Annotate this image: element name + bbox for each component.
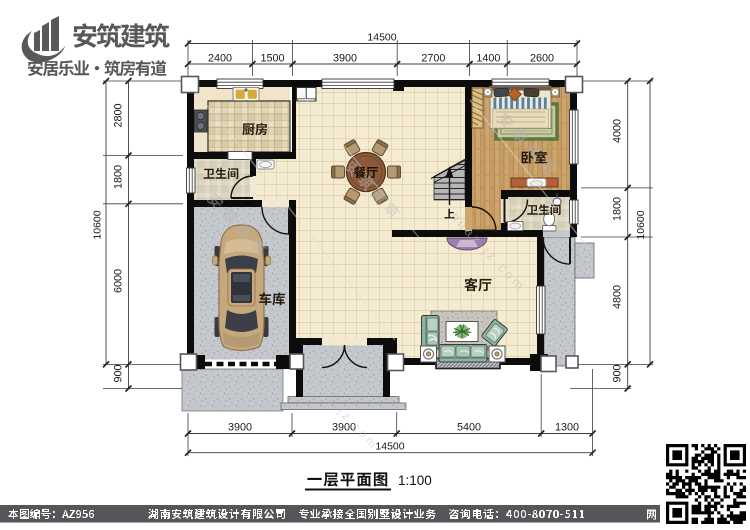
svg-text:1300: 1300 [555, 422, 579, 434]
svg-text:900: 900 [113, 364, 125, 382]
svg-text:5400: 5400 [457, 422, 481, 434]
svg-text:1500: 1500 [260, 53, 284, 65]
svg-text:3900: 3900 [333, 53, 357, 65]
svg-text:6000: 6000 [113, 269, 125, 293]
svg-text:1400: 1400 [476, 53, 500, 65]
svg-text:900: 900 [612, 364, 624, 382]
svg-text:2600: 2600 [530, 53, 554, 65]
svg-text:4800: 4800 [612, 285, 624, 309]
svg-text:2800: 2800 [113, 103, 125, 127]
svg-text:1:100: 1:100 [398, 473, 432, 488]
svg-text:2400: 2400 [208, 53, 232, 65]
svg-text:10600: 10600 [92, 210, 104, 239]
svg-text:4000: 4000 [612, 119, 624, 143]
svg-text:1800: 1800 [113, 165, 125, 189]
svg-text:3900: 3900 [228, 422, 252, 434]
svg-text:14500: 14500 [367, 32, 396, 44]
svg-text:10600: 10600 [635, 210, 647, 239]
svg-text:1800: 1800 [612, 197, 624, 221]
svg-text:2700: 2700 [421, 53, 445, 65]
